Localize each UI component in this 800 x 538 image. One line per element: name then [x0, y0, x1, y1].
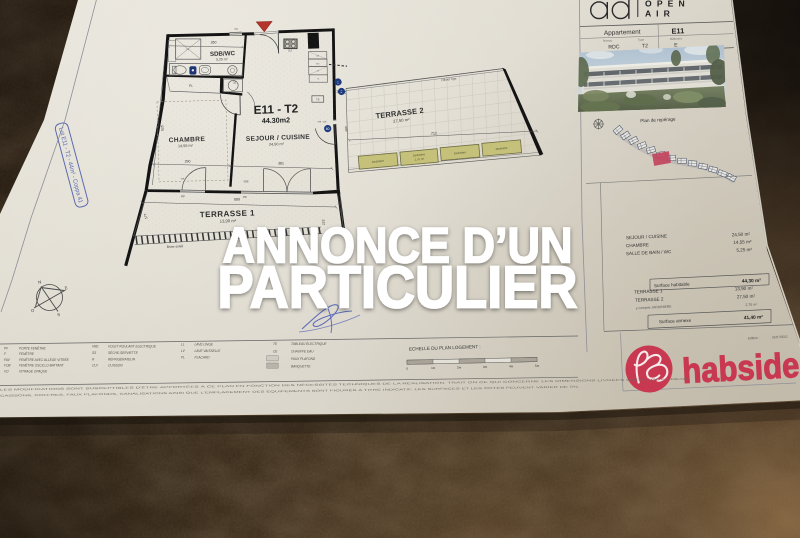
svg-text:Niveau: Niveau — [603, 38, 613, 42]
svg-text:VOLET ROULANT ELECTRIQUE: VOLET ROULANT ELECTRIQUE — [108, 344, 157, 348]
svg-text:41,40 m²: 41,40 m² — [744, 314, 764, 321]
svg-text:400: 400 — [344, 126, 348, 132]
svg-text:E11 - T2: E11 - T2 — [253, 101, 298, 117]
svg-text:FENÊTRE OSCILLO-BATTANT: FENÊTRE OSCILLO-BATTANT — [19, 363, 65, 368]
svg-text:VRE: VRE — [92, 344, 99, 348]
svg-text:Edition :: Edition : — [748, 336, 760, 341]
svg-text:PLACARD: PLACARD — [195, 355, 211, 359]
svg-text:FAUX PLAFOND: FAUX PLAFOND — [291, 357, 316, 361]
svg-text:FENÊTRE: FENÊTRE — [19, 351, 35, 356]
svg-text:PARTICULIER: PARTICULIER — [218, 255, 578, 321]
svg-text:Appartement: Appartement — [604, 29, 641, 37]
svg-text:FENÊTRE AVEC ALLÈGE VITRÉE: FENÊTRE AVEC ALLÈGE VITRÉE — [19, 357, 70, 362]
svg-text:60: 60 — [326, 127, 330, 131]
svg-text:24,50 m²: 24,50 m² — [732, 231, 751, 237]
svg-text:4m: 4m — [509, 364, 514, 368]
svg-text:FOB: FOB — [4, 364, 11, 368]
svg-text:13,90 m²: 13,90 m² — [735, 286, 754, 292]
svg-text:SÈCHE-SERVIETTE: SÈCHE-SERVIETTE — [108, 350, 139, 355]
svg-text:VO: VO — [234, 28, 238, 31]
svg-text:689: 689 — [234, 198, 240, 202]
svg-text:BANQUETTE: BANQUETTE — [291, 364, 311, 368]
svg-text:Type: Type — [638, 38, 645, 42]
svg-text:712: 712 — [431, 131, 437, 135]
svg-text:Bâtiment: Bâtiment — [670, 37, 682, 41]
svg-text:44,30 m²: 44,30 m² — [742, 278, 762, 285]
svg-text:2,70 m²: 2,70 m² — [745, 302, 758, 307]
svg-text:CUI: CUI — [92, 364, 98, 368]
svg-text:2m: 2m — [457, 365, 462, 369]
svg-text:CHAUFFE EAU: CHAUFFE EAU — [291, 350, 314, 354]
svg-text:RÉFRIGÉRATEUR: RÉFRIGÉRATEUR — [108, 356, 136, 361]
svg-text:PL: PL — [181, 355, 185, 359]
svg-text:27,50 m²: 27,50 m² — [737, 294, 756, 300]
svg-text:3m: 3m — [483, 365, 488, 369]
svg-text:5m: 5m — [535, 364, 540, 368]
svg-text:5,25 m²: 5,25 m² — [216, 57, 228, 61]
svg-text:1m: 1m — [431, 366, 436, 370]
svg-text:14,55 m²: 14,55 m² — [733, 239, 752, 245]
svg-text:381: 381 — [278, 161, 284, 165]
svg-text:RDC: RDC — [608, 44, 620, 50]
svg-text:14,55 m²: 14,55 m² — [178, 144, 194, 149]
svg-text:habside: habside — [681, 346, 800, 391]
svg-text:LAVE LINGE: LAVE LINGE — [195, 343, 214, 347]
svg-text:44.30m2: 44.30m2 — [262, 115, 291, 125]
svg-text:A I R: A I R — [645, 8, 671, 18]
svg-text:PORTE FENÊTRE: PORTE FENÊTRE — [19, 345, 47, 350]
svg-text:Brise soleil: Brise soleil — [167, 244, 184, 249]
svg-text:290: 290 — [185, 160, 191, 164]
svg-text:24,50 m²: 24,50 m² — [269, 142, 285, 147]
svg-text:525: 525 — [160, 125, 165, 131]
svg-text:VITRAGE OPAQUE: VITRAGE OPAQUE — [19, 370, 48, 374]
svg-text:260: 260 — [211, 41, 217, 45]
svg-text:LL: LL — [181, 343, 185, 347]
svg-text:VO: VO — [4, 370, 9, 374]
svg-text:31/07/2021: 31/07/2021 — [772, 335, 788, 340]
svg-text:CUISSON: CUISSON — [108, 364, 123, 368]
svg-text:T2: T2 — [642, 43, 648, 49]
svg-text:O P E N: O P E N — [645, 0, 686, 8]
svg-text:E11: E11 — [671, 26, 684, 35]
svg-text:5,25 m²: 5,25 m² — [736, 247, 752, 253]
svg-text:CHAMBRE: CHAMBRE — [626, 242, 649, 248]
svg-text:LAVE VAISSELLE: LAVE VAISSELLE — [195, 349, 222, 353]
svg-text:FAV: FAV — [4, 358, 11, 362]
svg-text:TABLEAU ÉLECTRIQUE: TABLEAU ÉLECTRIQUE — [291, 341, 327, 346]
